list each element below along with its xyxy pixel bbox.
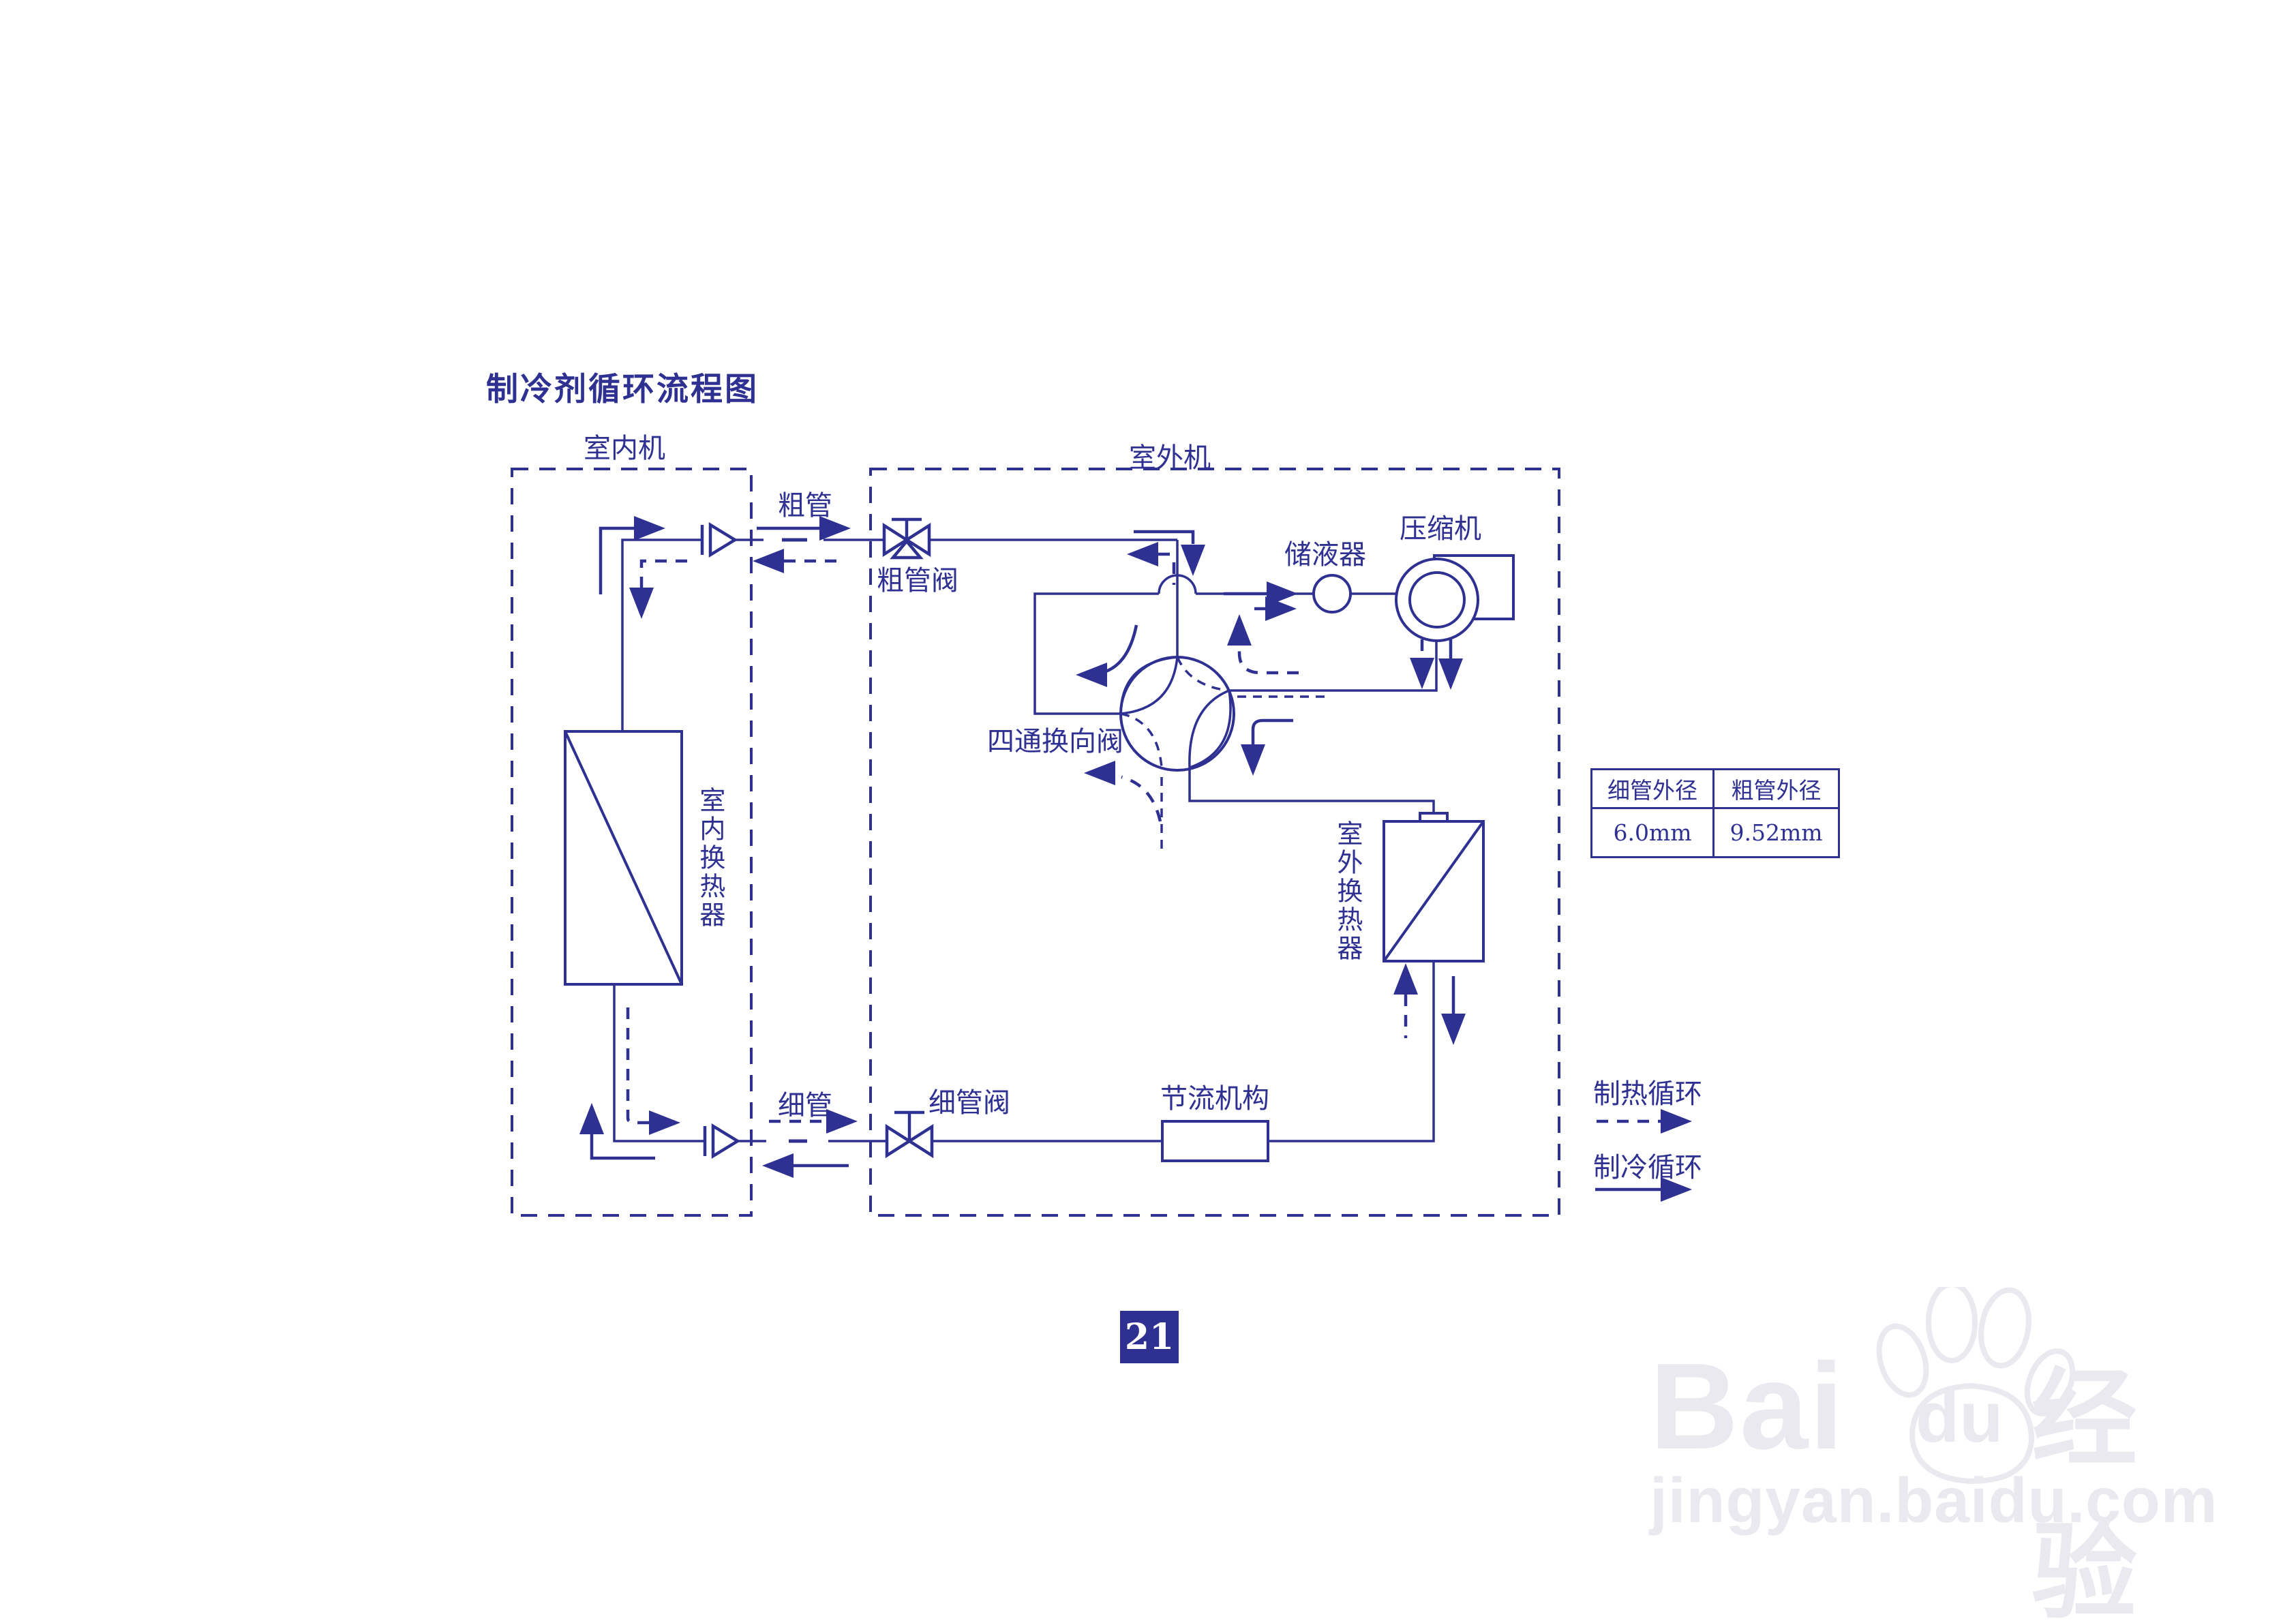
legend-heating-label: 制热循环	[1593, 1079, 1702, 1109]
thin-pipe-label: 细管	[778, 1091, 832, 1121]
thin-pipe-valve-symbol	[887, 1112, 932, 1155]
watermark-bai-text: Bai	[1650, 1336, 1845, 1477]
thick-pipe-valve-symbol	[884, 519, 929, 558]
indoor-check-valve-top	[702, 525, 735, 555]
accumulator-symbol	[1314, 575, 1350, 612]
page-number-badge: 21	[1120, 1311, 1179, 1363]
throttle-label: 节流机构	[1160, 1084, 1269, 1114]
table-header-thick: 粗管外径	[1715, 770, 1838, 809]
thick-pipe-run	[735, 540, 1177, 657]
indoor-heat-exchanger-symbol	[565, 540, 705, 1141]
indoor-heat-exchanger-label: 室内换热器	[695, 787, 724, 930]
table-header-thin: 细管外径	[1592, 770, 1715, 809]
throttle-symbol	[1162, 1121, 1268, 1161]
liquid-line-pipe	[738, 961, 1434, 1141]
watermark-site-url: jingyan.baidu.com	[1650, 1464, 2218, 1537]
compressor-label: 压缩机	[1400, 514, 1481, 544]
four-way-valve-symbol	[1121, 657, 1331, 850]
valve-to-outdoor-hx-pipe	[1190, 768, 1434, 813]
table-value-thin: 6.0mm	[1592, 809, 1715, 856]
manual-page: 制冷剂循环流程图 室内机 室外机 粗管 粗管阀 储液器 压缩机 四通换向阀 室内…	[0, 0, 2296, 1623]
outdoor-unit-label: 室外机	[1129, 443, 1211, 473]
pipe-diameter-table: 细管外径 粗管外径 6.0mm 9.52mm	[1590, 768, 1840, 858]
baidu-jingyan-watermark: Bai du 经验 jingyan.baidu.com	[1650, 1295, 2236, 1459]
page-title: 制冷剂循环流程图	[486, 371, 759, 407]
accumulator-label: 储液器	[1284, 540, 1366, 570]
thin-pipe-valve-label: 细管阀	[928, 1088, 1010, 1118]
outdoor-heat-exchanger-symbol	[1384, 813, 1483, 961]
indoor-check-valve-bottom	[705, 1126, 738, 1156]
page-number: 21	[1125, 1316, 1174, 1358]
thick-pipe-label: 粗管	[778, 491, 832, 521]
legend-heating-arrow	[1597, 1109, 1692, 1134]
thick-pipe-valve-label: 粗管阀	[877, 566, 958, 596]
compressor-symbol	[1396, 556, 1513, 641]
four-way-valve-label: 四通换向阀	[987, 727, 1123, 757]
table-value-thick: 9.52mm	[1715, 809, 1838, 856]
indoor-unit-label: 室内机	[584, 434, 665, 464]
heating-flow-arrows	[628, 542, 1434, 1135]
watermark-du-text: du	[1916, 1377, 2003, 1459]
outdoor-heat-exchanger-label: 室外换热器	[1333, 820, 1361, 963]
watermark-logo-row: Bai du 经验	[1650, 1295, 2236, 1459]
legend-cooling-label: 制冷循环	[1593, 1153, 1702, 1183]
discharge-pipe	[1229, 641, 1436, 691]
